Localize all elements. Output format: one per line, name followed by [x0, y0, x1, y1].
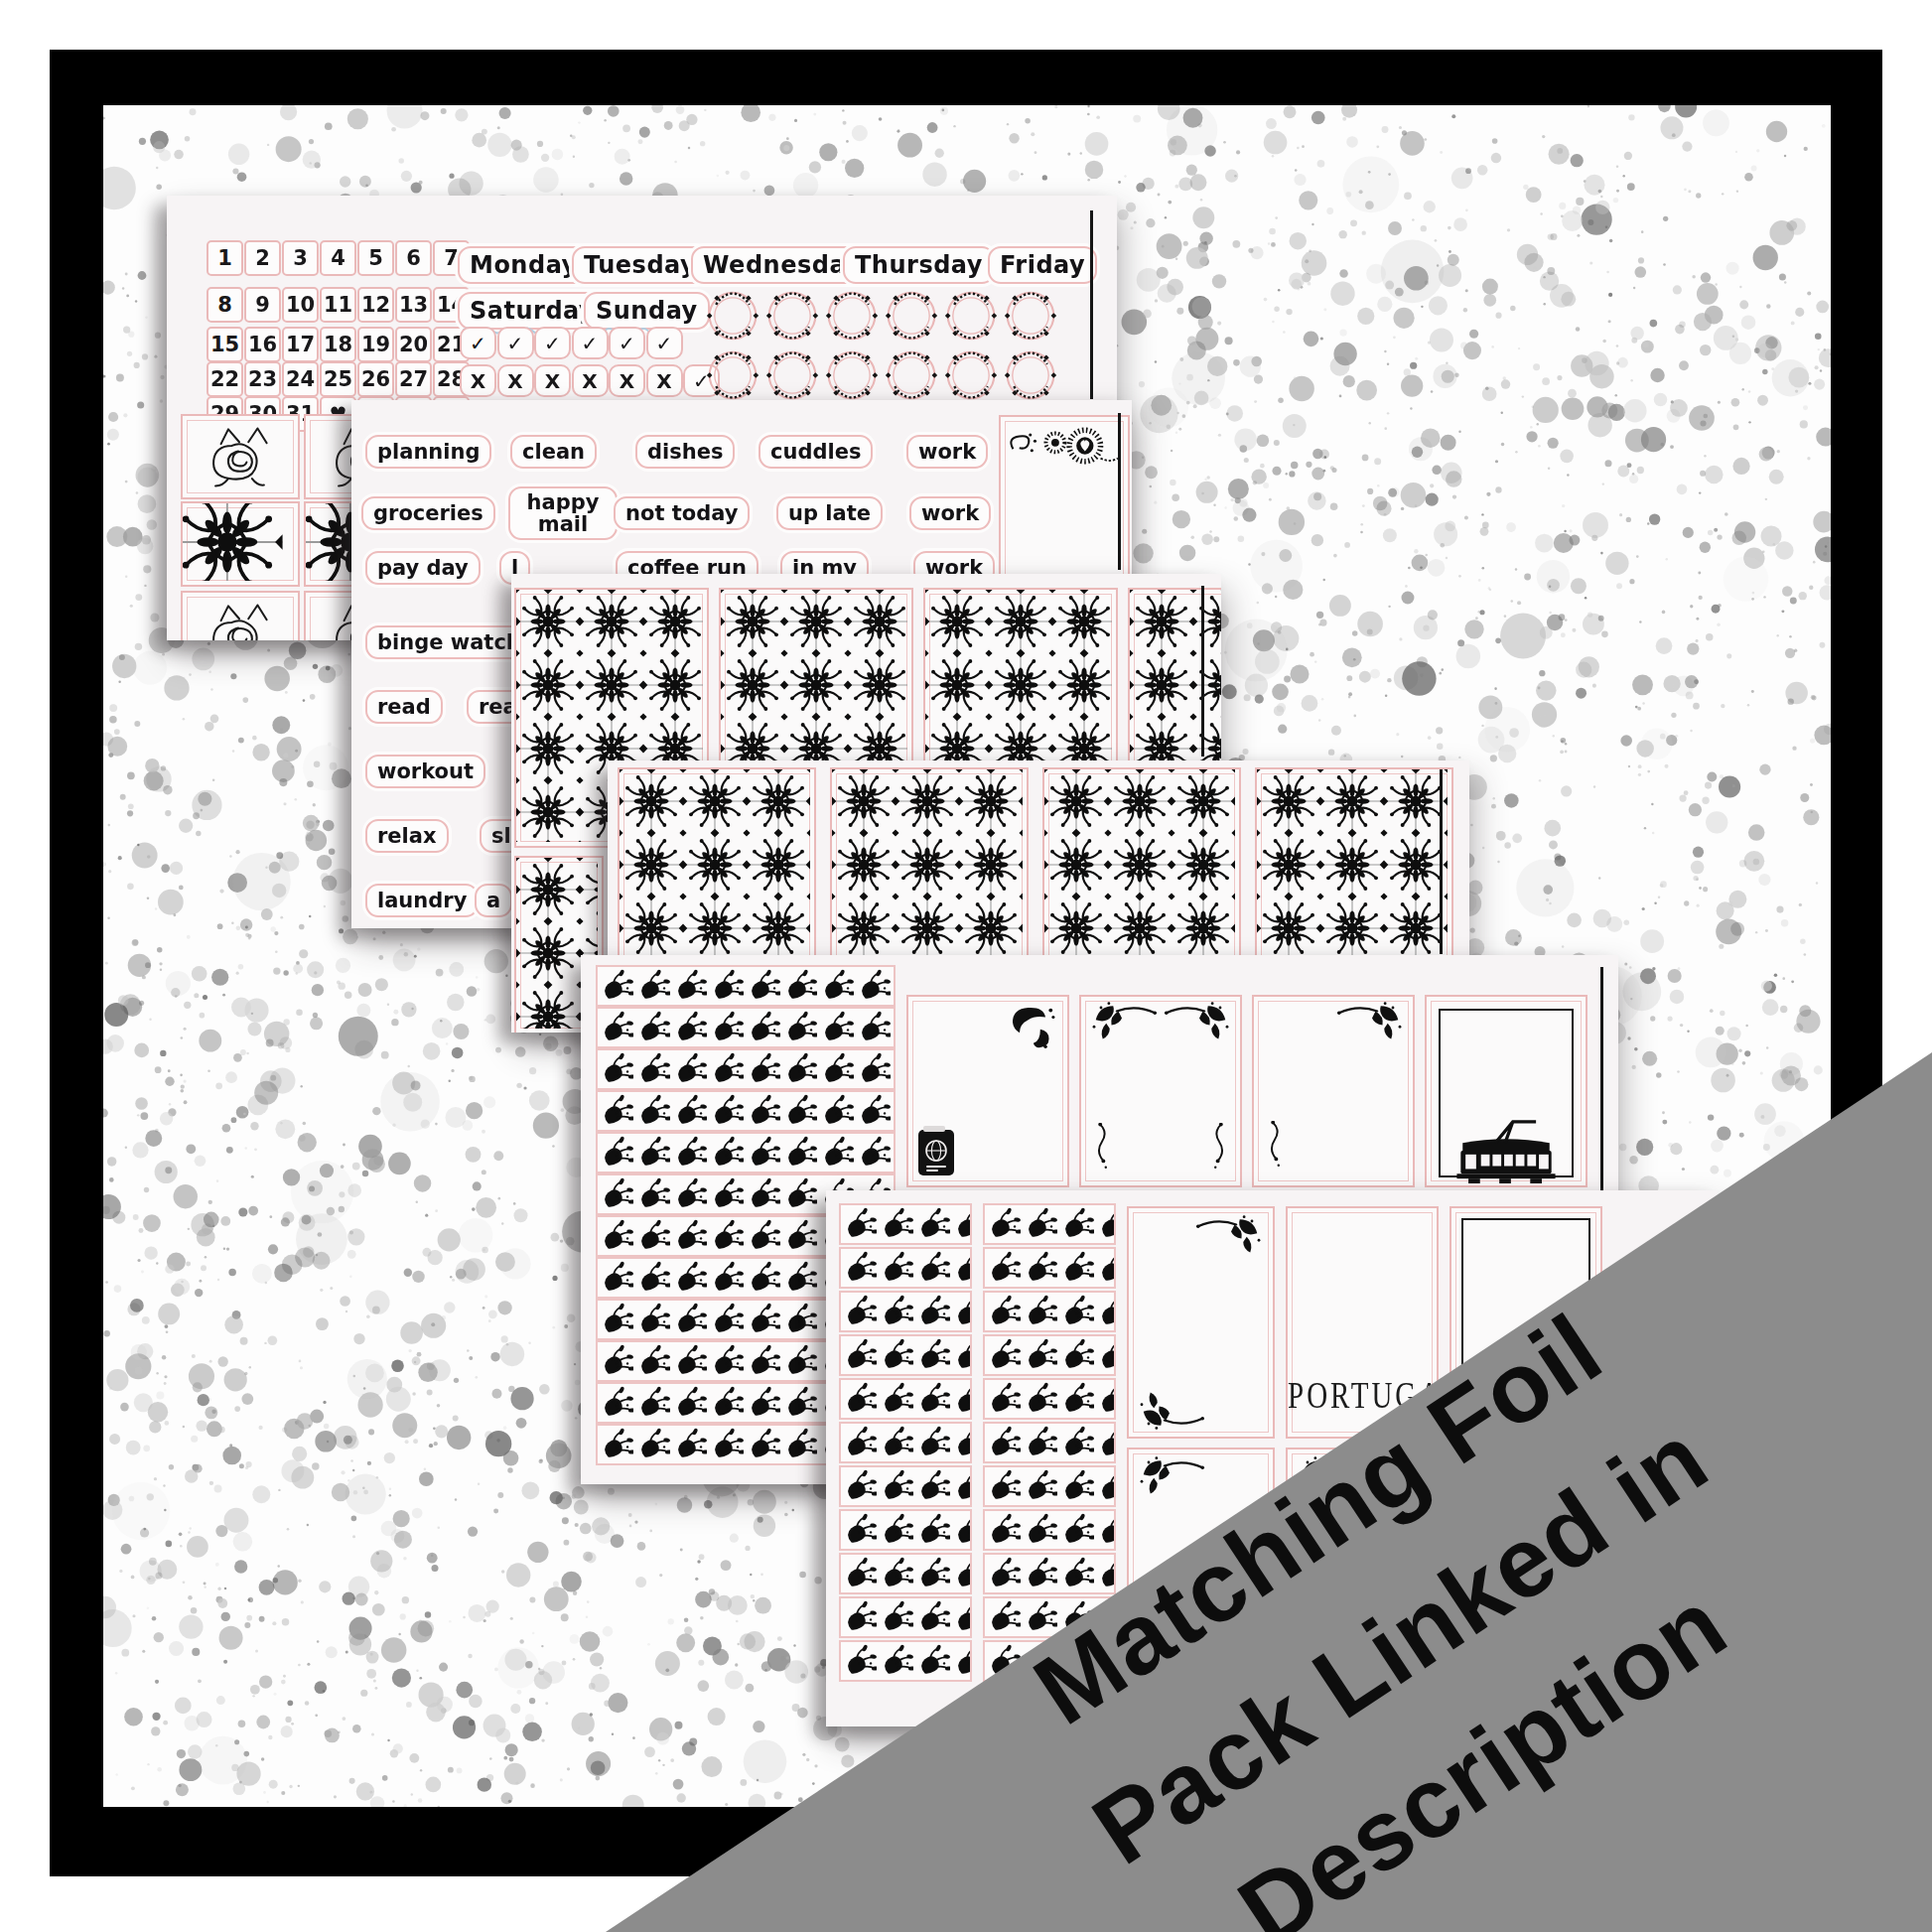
fleur-sprig-pattern — [841, 1467, 970, 1505]
wreath-sticker — [824, 347, 880, 403]
weekday-sticker: Tuesday — [572, 246, 708, 284]
swash-passport-box-sticker — [906, 995, 1069, 1187]
fleur-sprig-pattern — [985, 1249, 1114, 1287]
passport-icon — [916, 1124, 956, 1177]
checkmark-sticker: ✓ — [609, 327, 645, 359]
word-sticker: clean — [510, 435, 597, 469]
wreath-sticker — [764, 288, 820, 344]
washi-strip-sticker — [596, 1090, 896, 1132]
washi-strip-sticker — [839, 1378, 972, 1420]
fleur-sprig-pattern — [598, 1009, 894, 1046]
wreath-sticker — [764, 347, 820, 403]
date-sticker: 19 — [357, 327, 394, 362]
word-sticker: binge watch — [365, 625, 533, 659]
washi-strip-sticker — [839, 1640, 972, 1682]
washi-strip-sticker — [839, 1465, 972, 1507]
washi-strip-sticker — [596, 1007, 896, 1048]
word-sticker: work — [909, 496, 991, 530]
x-sticker: X — [497, 364, 534, 397]
flourish-icon — [1133, 1455, 1206, 1511]
x-sticker: X — [609, 364, 645, 397]
flourish-icon — [1163, 1001, 1236, 1056]
date-sticker: 2 — [244, 240, 281, 276]
wreath-sticker — [1003, 288, 1058, 344]
fleur-sprig-pattern — [598, 1134, 894, 1172]
checkmark-sticker: ✓ — [497, 327, 534, 359]
date-sticker: 16 — [244, 327, 281, 362]
washi-strip-sticker — [983, 1465, 1116, 1507]
date-sticker: 8 — [207, 287, 243, 323]
fleur-sprig-pattern — [841, 1511, 970, 1549]
washi-strip-sticker — [839, 1203, 972, 1245]
fleur-sprig-pattern — [841, 1249, 970, 1287]
washi-strip-sticker — [983, 1553, 1116, 1594]
flourish-icon — [1194, 1214, 1268, 1270]
fleur-sprig-pattern — [598, 1050, 894, 1088]
washi-strip-sticker — [839, 1509, 972, 1551]
rose-icon — [193, 422, 286, 491]
word-sticker: up late — [776, 496, 883, 530]
washi-strip-sticker — [983, 1247, 1116, 1289]
word-sticker: planning — [365, 435, 491, 469]
tile-sticker — [181, 501, 300, 587]
fleur-sprig-pattern — [985, 1555, 1114, 1592]
date-sticker: 11 — [320, 287, 356, 323]
fleur-sprig-pattern — [598, 967, 894, 1005]
washi-strip-sticker — [983, 1334, 1116, 1376]
wreath-sticker — [705, 288, 760, 344]
listing-image: 1234567891011121314151617181920212223242… — [0, 0, 1932, 1932]
washi-strip-sticker — [596, 965, 896, 1007]
curl-icon — [1208, 1116, 1232, 1177]
date-sticker: 24 — [282, 361, 319, 397]
date-sticker: 23 — [244, 361, 281, 397]
wreath-sticker — [943, 347, 999, 403]
date-sticker: 15 — [207, 327, 243, 362]
word-sticker: not today — [614, 496, 750, 530]
washi-strip-sticker — [983, 1378, 1116, 1420]
x-sticker: X — [534, 364, 571, 397]
date-sticker: 25 — [320, 361, 356, 397]
fleur-sprig-pattern — [841, 1336, 970, 1374]
fleur-sprig-pattern — [841, 1598, 970, 1636]
word-sticker: relax — [365, 819, 449, 853]
flourish-icon — [1335, 1001, 1409, 1056]
word-sticker: groceries — [361, 496, 495, 530]
flourish-box-sticker — [1079, 995, 1242, 1187]
curl-icon — [1089, 1116, 1113, 1177]
word-sticker: dishes — [635, 435, 735, 469]
washi-strip-sticker — [839, 1334, 972, 1376]
wreath-sticker — [943, 288, 999, 344]
word-sticker: happy mail — [508, 486, 618, 540]
fleur-sprig-pattern — [985, 1467, 1114, 1505]
washi-strip-sticker — [983, 1422, 1116, 1463]
word-sticker: workout — [365, 755, 485, 788]
washi-strip-sticker — [839, 1596, 972, 1638]
fleur-sprig-pattern — [841, 1642, 970, 1680]
tram-frame-box-sticker — [1425, 995, 1587, 1187]
flourish-icon — [1133, 1375, 1206, 1431]
curl-icon — [1262, 1114, 1286, 1175]
date-sticker: 13 — [395, 287, 432, 323]
word-sticker: work — [906, 435, 988, 469]
washi-strip-sticker — [983, 1203, 1116, 1245]
date-sticker: 10 — [282, 287, 319, 323]
date-sticker: 9 — [244, 287, 281, 323]
cut-mark — [1440, 769, 1443, 954]
rose-sticker — [181, 414, 300, 499]
checkmark-sticker: ✓ — [460, 327, 496, 359]
fleur-sprig-pattern — [841, 1205, 970, 1243]
date-sticker: 17 — [282, 327, 319, 362]
x-sticker: X — [646, 364, 683, 397]
washi-strip-sticker — [839, 1291, 972, 1332]
word-sticker: a — [475, 884, 512, 917]
washi-strip-sticker — [839, 1422, 972, 1463]
fleur-sprig-pattern — [985, 1380, 1114, 1418]
word-sticker: pay day — [365, 551, 481, 585]
word-sticker: read — [365, 690, 443, 724]
rose-icon — [193, 599, 286, 640]
fleur-sprig-pattern — [985, 1205, 1114, 1243]
rose-sticker — [181, 591, 300, 640]
fleur-sprig-pattern — [841, 1380, 970, 1418]
fleur-sprig-pattern — [985, 1293, 1114, 1330]
flourish-box-sticker — [1252, 995, 1415, 1187]
x-sticker: X — [572, 364, 609, 397]
fleur-sprig-pattern — [985, 1424, 1114, 1461]
washi-strip-sticker — [596, 1132, 896, 1173]
washi-strip-sticker — [839, 1247, 972, 1289]
swash-icon — [1006, 1005, 1059, 1050]
date-sticker: 20 — [395, 327, 432, 362]
date-sticker: 4 — [320, 240, 356, 276]
checkmark-sticker: ✓ — [572, 327, 609, 359]
cut-mark — [1090, 210, 1093, 399]
wreath-sticker — [884, 347, 939, 403]
washi-strip-sticker — [983, 1509, 1116, 1551]
cut-mark — [1118, 413, 1121, 570]
flourish-icon — [1085, 1001, 1159, 1056]
fleur-sprig-pattern — [985, 1511, 1114, 1549]
lace-ornament-icon — [1004, 423, 1121, 469]
wreath-sticker — [824, 288, 880, 344]
date-sticker: 27 — [395, 361, 432, 397]
wreath-sticker — [705, 347, 760, 403]
fleur-sprig-pattern — [841, 1293, 970, 1330]
date-sticker: 18 — [320, 327, 356, 362]
wreath-sticker — [1003, 347, 1058, 403]
azulejo-tile-pattern — [183, 503, 294, 581]
date-sticker: 22 — [207, 361, 243, 397]
washi-strip-sticker — [596, 1048, 896, 1090]
word-sticker: laundry — [365, 884, 479, 917]
weekday-sticker: Monday — [458, 246, 590, 284]
flourish-box-sticker — [1127, 1206, 1275, 1439]
washi-strip-sticker — [983, 1291, 1116, 1332]
wreath-sticker — [884, 288, 939, 344]
checkmark-sticker: ✓ — [646, 327, 683, 359]
fleur-sprig-pattern — [985, 1336, 1114, 1374]
date-sticker: 12 — [357, 287, 394, 323]
fleur-sprig-pattern — [598, 1092, 894, 1130]
weekday-sticker: Thursday — [843, 246, 995, 284]
date-sticker: 1 — [207, 240, 243, 276]
word-sticker: cuddles — [759, 435, 873, 469]
date-sticker: 3 — [282, 240, 319, 276]
date-sticker: 6 — [395, 240, 432, 276]
washi-strip-sticker — [839, 1553, 972, 1594]
fleur-sprig-pattern — [841, 1424, 970, 1461]
fleur-sprig-pattern — [841, 1555, 970, 1592]
x-sticker: X — [460, 364, 496, 397]
cut-mark — [1201, 586, 1204, 757]
weekday-sticker: Friday — [988, 246, 1097, 284]
checkmark-sticker: ✓ — [534, 327, 571, 359]
weekday-sticker: Sunday — [584, 292, 710, 330]
date-sticker: 26 — [357, 361, 394, 397]
date-sticker: 5 — [357, 240, 394, 276]
tram-icon — [1452, 1114, 1560, 1183]
